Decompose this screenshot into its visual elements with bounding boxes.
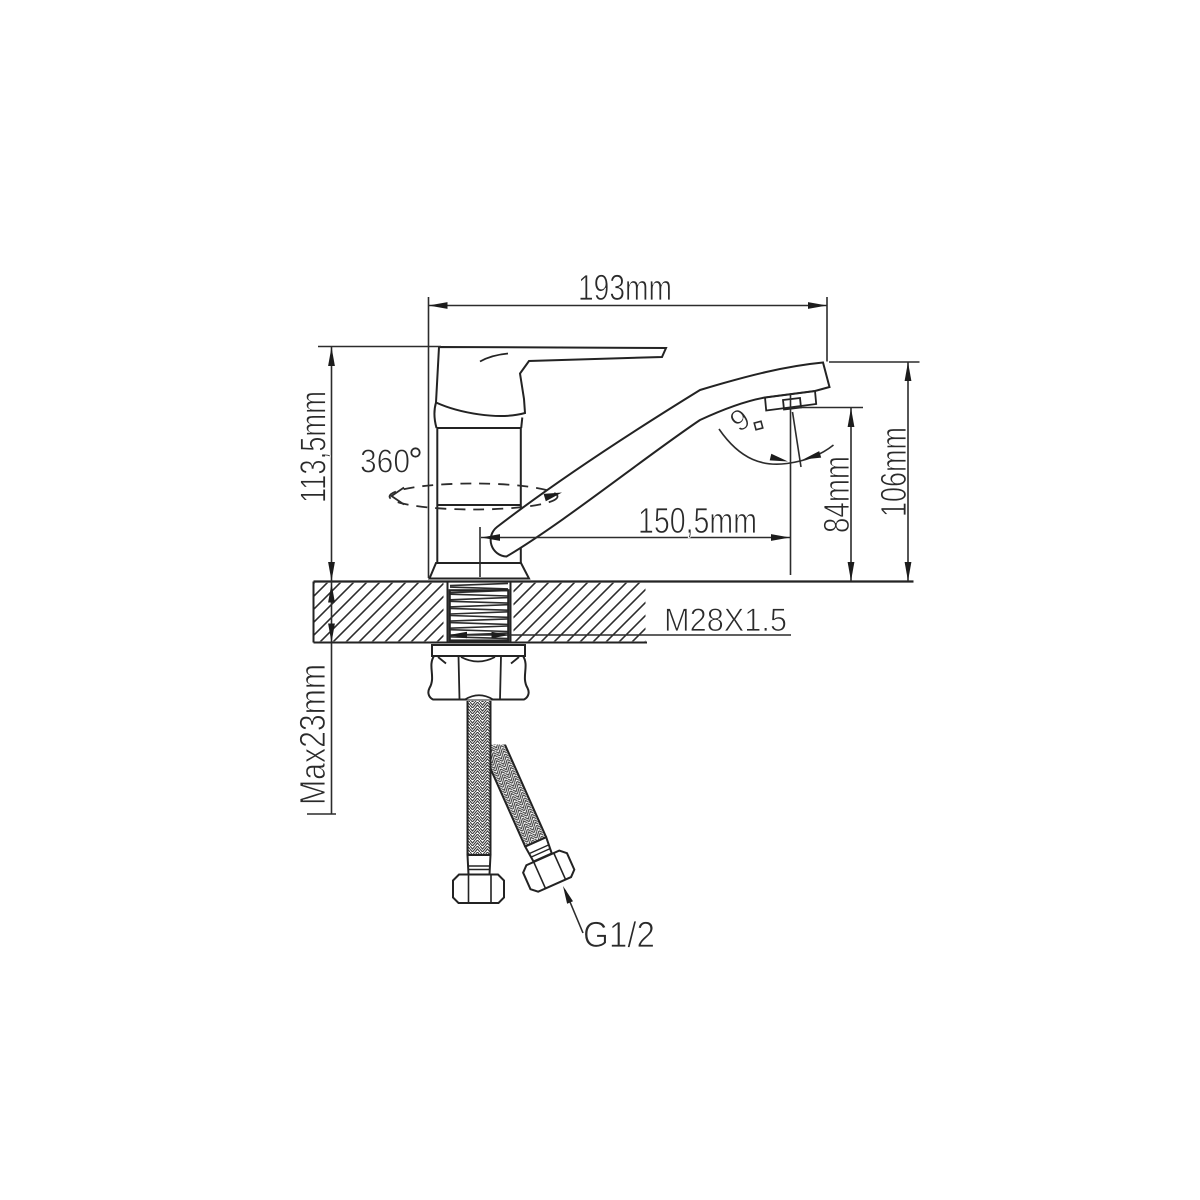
svg-text:150,5mm: 150,5mm xyxy=(638,500,757,541)
svg-text:113,5mm: 113,5mm xyxy=(293,391,334,503)
svg-text:84mm: 84mm xyxy=(816,456,857,533)
svg-text:Max23mm: Max23mm xyxy=(292,664,333,805)
svg-text:360: 360 xyxy=(360,443,410,480)
svg-text:106mm: 106mm xyxy=(873,427,914,517)
svg-text:G1/2: G1/2 xyxy=(583,914,655,955)
svg-text:193mm: 193mm xyxy=(578,267,672,308)
svg-text:M28X1.5: M28X1.5 xyxy=(664,602,787,638)
